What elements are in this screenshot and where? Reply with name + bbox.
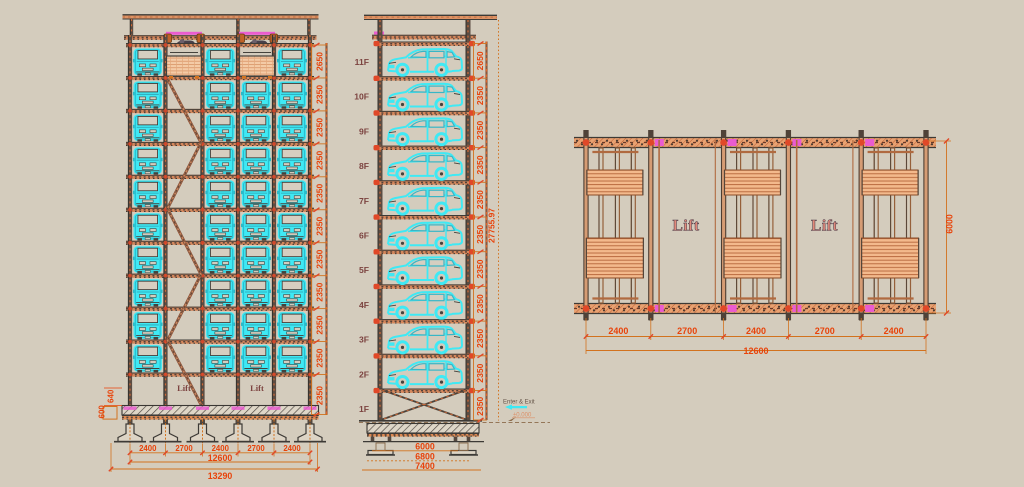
svg-text:2350: 2350 <box>475 329 485 348</box>
svg-text:2350: 2350 <box>315 151 325 170</box>
svg-text:12600: 12600 <box>208 453 233 463</box>
svg-text:640: 640 <box>107 389 116 403</box>
svg-text:Lift: Lift <box>250 383 264 393</box>
svg-text:2350: 2350 <box>475 120 485 139</box>
svg-text:2400: 2400 <box>608 326 628 336</box>
svg-text:2350: 2350 <box>315 118 325 137</box>
svg-text:6000: 6000 <box>415 442 435 452</box>
svg-text:5F: 5F <box>359 265 369 275</box>
svg-text:Lift: Lift <box>673 218 700 235</box>
svg-text:7400: 7400 <box>415 461 435 471</box>
svg-text:11F: 11F <box>355 57 369 67</box>
svg-text:9F: 9F <box>359 126 369 136</box>
svg-text:2700: 2700 <box>175 444 193 453</box>
svg-text:6F: 6F <box>359 231 369 241</box>
svg-text:2350: 2350 <box>315 183 325 202</box>
svg-text:2400: 2400 <box>884 326 904 336</box>
svg-text:2350: 2350 <box>475 363 485 382</box>
svg-text:2350: 2350 <box>315 216 325 235</box>
svg-text:2350: 2350 <box>475 259 485 278</box>
svg-text:2400: 2400 <box>283 444 301 453</box>
svg-text:Lift: Lift <box>811 218 838 235</box>
svg-text:2650: 2650 <box>315 52 325 71</box>
svg-text:27755.97: 27755.97 <box>487 208 497 243</box>
svg-text:2350: 2350 <box>475 190 485 209</box>
svg-text:2350: 2350 <box>475 294 485 313</box>
svg-text:7F: 7F <box>359 196 369 206</box>
svg-text:Lift: Lift <box>177 383 191 393</box>
svg-text:13290: 13290 <box>208 471 233 481</box>
svg-text:2400: 2400 <box>139 444 157 453</box>
svg-text:600: 600 <box>98 405 107 419</box>
svg-text:2350: 2350 <box>475 86 485 105</box>
svg-text:2F: 2F <box>359 369 369 379</box>
svg-text:2650: 2650 <box>475 51 485 70</box>
svg-text:2350: 2350 <box>315 315 325 334</box>
svg-text:10F: 10F <box>354 92 369 102</box>
svg-text:2350: 2350 <box>475 155 485 174</box>
svg-text:Enter & Exit: Enter & Exit <box>503 400 535 406</box>
svg-text:8F: 8F <box>359 161 369 171</box>
svg-text:2700: 2700 <box>677 326 697 336</box>
svg-text:12600: 12600 <box>743 346 768 356</box>
svg-text:6000: 6000 <box>945 214 955 234</box>
svg-text:2700: 2700 <box>247 444 265 453</box>
svg-text:2350: 2350 <box>315 85 325 104</box>
svg-text:2350: 2350 <box>315 282 325 301</box>
svg-text:2350: 2350 <box>315 249 325 268</box>
svg-text:2350: 2350 <box>475 225 485 244</box>
svg-text:2350: 2350 <box>315 386 325 405</box>
svg-text:4F: 4F <box>359 300 369 310</box>
svg-text:2350: 2350 <box>315 348 325 367</box>
svg-text:1F: 1F <box>359 404 369 414</box>
svg-text:2350: 2350 <box>475 396 485 415</box>
svg-text:3F: 3F <box>359 335 369 345</box>
svg-text:2700: 2700 <box>815 326 835 336</box>
svg-text:2400: 2400 <box>212 444 230 453</box>
svg-text:2400: 2400 <box>746 326 766 336</box>
